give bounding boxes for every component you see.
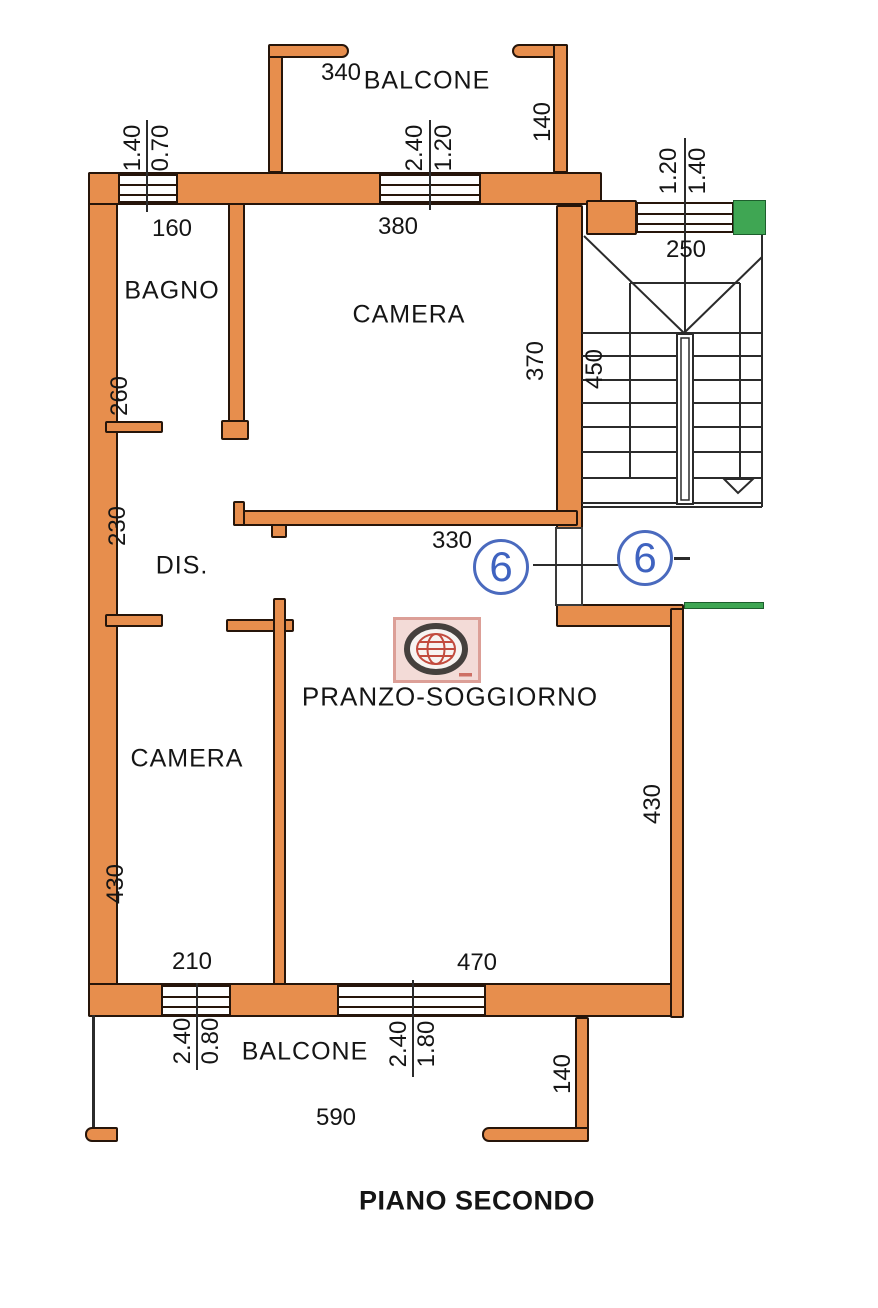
balcony-bottom-right-cap: [482, 1127, 589, 1142]
window-glass: [120, 184, 176, 196]
dim-camera-top-depth: 370: [522, 341, 550, 381]
room-label-dis: DIS.: [156, 552, 209, 581]
room-label-balcone-bottom: BALCONE: [242, 1038, 368, 1067]
balcony-bottom-right-wall: [575, 1017, 589, 1141]
dim-dis-depth: 230: [104, 506, 132, 546]
room-label-camera-top: CAMERA: [353, 301, 466, 330]
marker-right-dash: [674, 557, 690, 560]
dim-balcone-bottom-width: 590: [316, 1104, 356, 1132]
balcony-bottom-left-stub: [85, 1127, 118, 1142]
entrance-door-opening: [555, 527, 583, 606]
dim-bagno-window-inner: 0.70: [147, 125, 175, 172]
unit-marker-right: 6: [617, 530, 673, 586]
dim-stair-depth: 450: [581, 349, 609, 389]
dim-pranzo-depth: 430: [639, 784, 667, 824]
dim-bagno-window-outer: 1.40: [119, 125, 147, 172]
room-label-camera-bottom: CAMERA: [131, 745, 244, 774]
dim-stair-window-outer: 1.20: [655, 148, 683, 195]
dim-bagno-depth: 260: [106, 376, 134, 416]
dim-stair-window-inner: 1.40: [684, 148, 712, 195]
dim-camera-top-width: 380: [378, 213, 418, 241]
wall-camera-pranzo-divider: [273, 598, 286, 985]
dim-balcone-top-depth: 140: [529, 102, 557, 142]
dim-bagno-width: 160: [152, 215, 192, 243]
wall-bagno-divider: [228, 203, 245, 422]
wall-camera-top-bottom-tick: [233, 501, 245, 526]
agency-logo-watermark: [393, 617, 481, 683]
balcony-top-left-cap: [268, 44, 349, 58]
wall-bagno-divider-foot: [221, 420, 249, 440]
dim-pranzo-window-inner: 1.80: [413, 1021, 441, 1068]
dim-camera-bottom-depth: 430: [102, 864, 130, 904]
dim-camera-top-window-inner: 1.20: [430, 125, 458, 172]
dim-camera-bottom-window-inner: 0.80: [197, 1018, 225, 1065]
dim-balcone-bottom-depth: 140: [549, 1054, 577, 1094]
dim-stair-width: 250: [666, 236, 706, 264]
unit-marker-left: 6: [473, 539, 529, 595]
dim-camera-top-window-outer: 2.40: [401, 125, 429, 172]
wall-camera-top-bottom-stub: [271, 524, 287, 538]
wall-dis-bottom-stub: [105, 614, 163, 627]
wall-pranzo-top-right: [556, 604, 684, 627]
room-label-balcone-top: BALCONE: [364, 67, 490, 96]
floor-plan: 6 6 BALCONE BAGNO CAMERA DIS. PRANZO-SOG…: [0, 0, 878, 1308]
dim-camera-bottom-width: 210: [172, 948, 212, 976]
dim-camera-bottom-window-outer: 2.40: [169, 1018, 197, 1065]
stairs-down-arrow: [724, 479, 753, 493]
room-label-pranzo: PRANZO-SOGGIORNO: [302, 682, 598, 713]
marker-connector-line: [533, 564, 619, 566]
dim-entry-span: 330: [432, 527, 472, 555]
window-bagno: [118, 174, 178, 203]
wall-bagno-bottom-stub: [105, 421, 163, 433]
wall-pranzo-right: [670, 608, 684, 1018]
dim-pranzo-width: 470: [457, 949, 497, 977]
plan-title: PIANO SECONDO: [359, 1186, 595, 1217]
balcony-bottom-left-line: [92, 1015, 95, 1131]
dim-pranzo-window-outer: 2.40: [385, 1021, 413, 1068]
neighbor-wall-side: [684, 602, 764, 609]
dim-balcone-top-width: 340: [321, 59, 361, 87]
room-label-bagno: BAGNO: [124, 277, 219, 306]
unit-number: 6: [633, 534, 656, 582]
balcony-top-left-wall: [268, 46, 283, 173]
unit-number: 6: [489, 543, 512, 591]
